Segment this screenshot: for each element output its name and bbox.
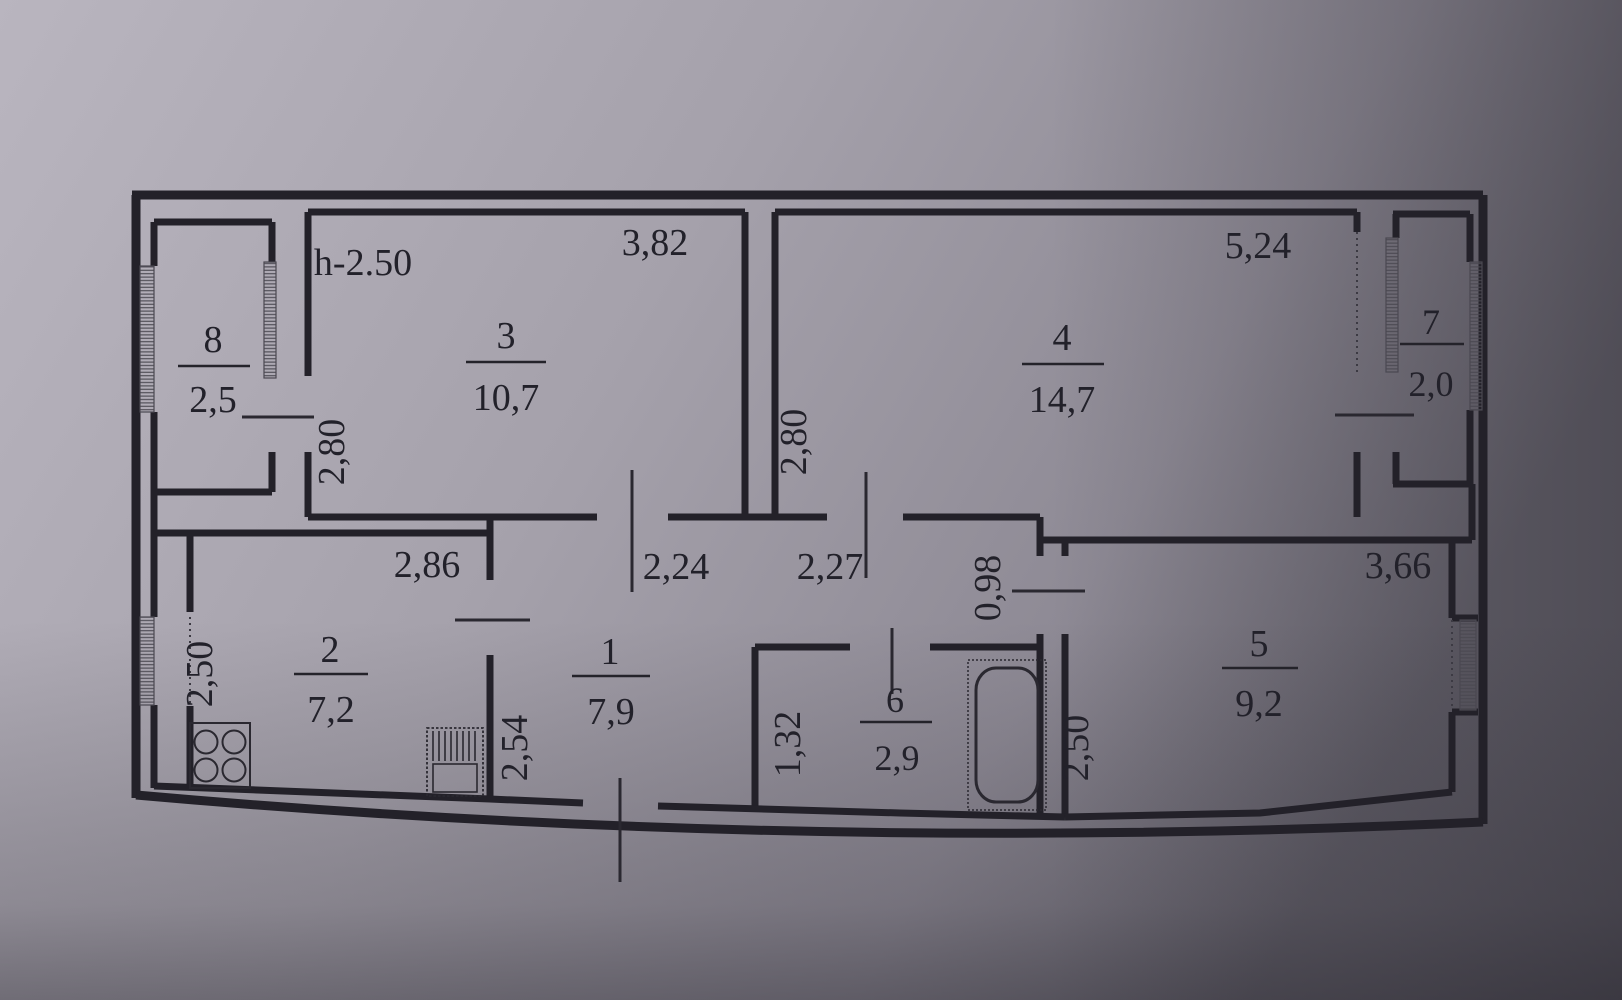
ceiling-height-label: h-2.50 — [314, 242, 412, 284]
room-4-area: 14,7 — [1029, 379, 1096, 421]
dim-room3-width: 3,82 — [622, 222, 689, 264]
room-5-area: 9,2 — [1235, 683, 1283, 725]
room-7-number: 7 — [1422, 302, 1440, 342]
room-4-number: 4 — [1053, 317, 1072, 359]
dim-kitchen-width: 2,86 — [394, 544, 461, 586]
room-3-area: 10,7 — [473, 377, 540, 419]
room-8-area: 2,5 — [189, 379, 237, 421]
dim-hall-left: 2,24 — [643, 546, 710, 588]
window-icon — [264, 262, 276, 378]
dim-hall-depth: 2,54 — [494, 715, 536, 782]
scanned-floor-plan-photo: 8 2,5 3 10,7 4 14,7 7 2,0 2 7,2 1 7,9 6 … — [0, 0, 1622, 1000]
floor-plan: 8 2,5 3 10,7 4 14,7 7 2,0 2 7,2 1 7,9 6 … — [0, 0, 1622, 1000]
window-icon — [1386, 238, 1398, 372]
room-2-area: 7,2 — [307, 689, 355, 731]
room-1-area: 7,9 — [587, 691, 635, 733]
room-1-number: 1 — [601, 631, 620, 673]
dim-passage: 0,98 — [967, 555, 1009, 622]
dim-room5-width: 3,66 — [1365, 545, 1432, 587]
dim-hall-right: 2,27 — [797, 546, 864, 588]
window-icon — [140, 617, 154, 705]
window-icon — [1470, 262, 1482, 410]
window-icon — [140, 266, 154, 412]
window-icon — [1460, 620, 1476, 710]
dim-room4-width: 5,24 — [1225, 225, 1292, 267]
dim-kitchen-depth: 2,50 — [179, 641, 221, 708]
room-8-number: 8 — [204, 319, 223, 361]
dim-room4-depth: 2,80 — [773, 409, 815, 476]
room-7-area: 2,0 — [1409, 364, 1454, 404]
room-6-area: 2,9 — [875, 738, 920, 778]
room-5-number: 5 — [1250, 623, 1269, 665]
dim-bath-depth: 1,32 — [767, 711, 809, 778]
dim-room3-depth: 2,80 — [311, 419, 353, 486]
room-6-number: 6 — [886, 680, 904, 720]
dim-room5-depth: 2,50 — [1055, 715, 1097, 782]
room-3-number: 3 — [497, 315, 516, 357]
room-2-number: 2 — [321, 629, 340, 671]
